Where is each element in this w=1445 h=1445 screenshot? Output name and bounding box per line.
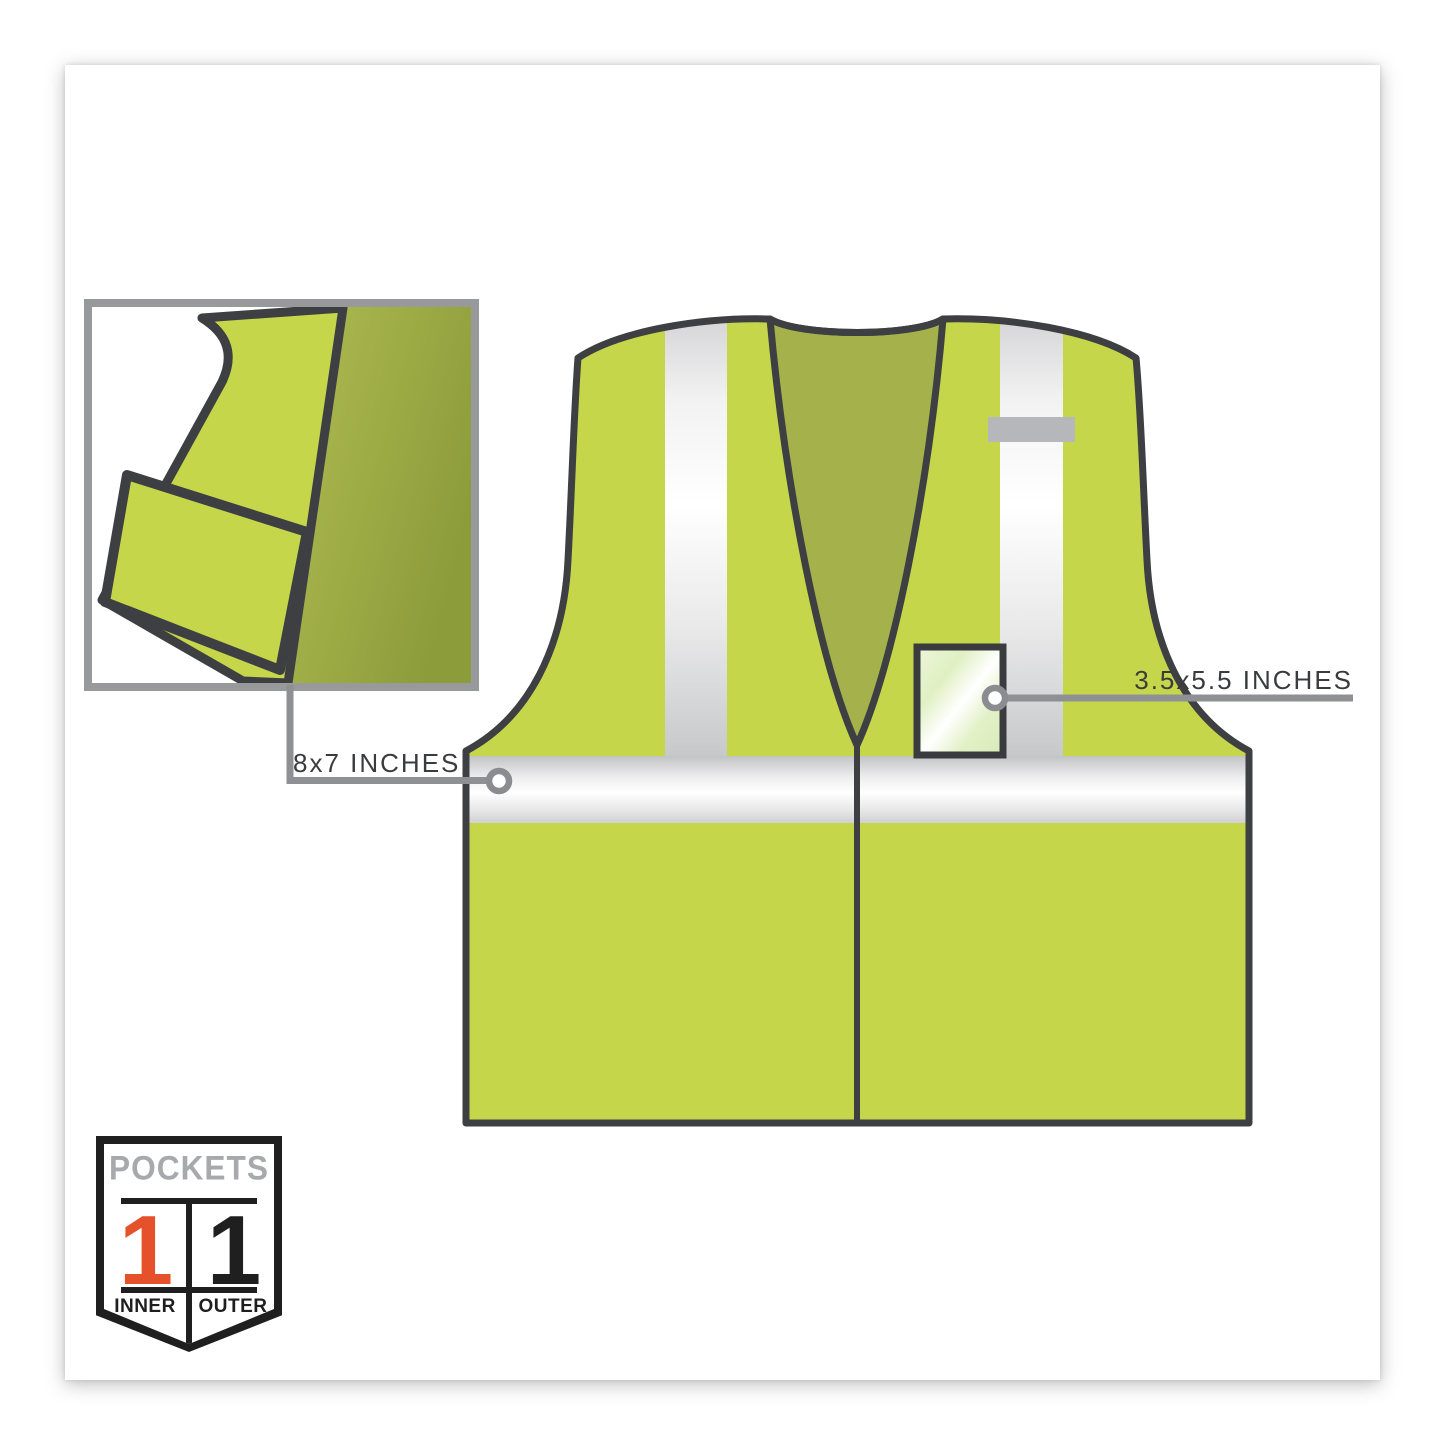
inner-pocket-inset (88, 303, 475, 687)
pockets-badge-face: POCKETS 1 1 INNER OUTER (104, 1144, 274, 1344)
left-vertical-reflective-stripe (665, 300, 727, 756)
infographic-canvas: 8x7 INCHES 3.5x5.5 INCHES POCKETS 1 1 IN… (0, 0, 1445, 1445)
inner-pocket-callout-marker (489, 771, 509, 791)
right-vertical-reflective-stripe (1000, 300, 1063, 756)
pockets-badge-title: POCKETS (102, 1148, 275, 1188)
inner-pocket-size-label: 8x7 INCHES (293, 749, 460, 778)
pockets-badge: POCKETS 1 1 INNER OUTER (96, 1136, 282, 1352)
inner-pocket-count: 1 (104, 1207, 186, 1293)
infographic-card: 8x7 INCHES 3.5x5.5 INCHES POCKETS 1 1 IN… (65, 65, 1380, 1380)
badge-pocket-callout-marker (985, 688, 1005, 708)
pockets-badge-rule-bottom (121, 1287, 257, 1293)
outer-pocket-count: 1 (192, 1207, 274, 1293)
shoulder-mic-tab (988, 417, 1075, 442)
vest-illustration (463, 300, 1253, 1123)
badge-pocket-size-label: 3.5x5.5 INCHES (1134, 666, 1353, 695)
